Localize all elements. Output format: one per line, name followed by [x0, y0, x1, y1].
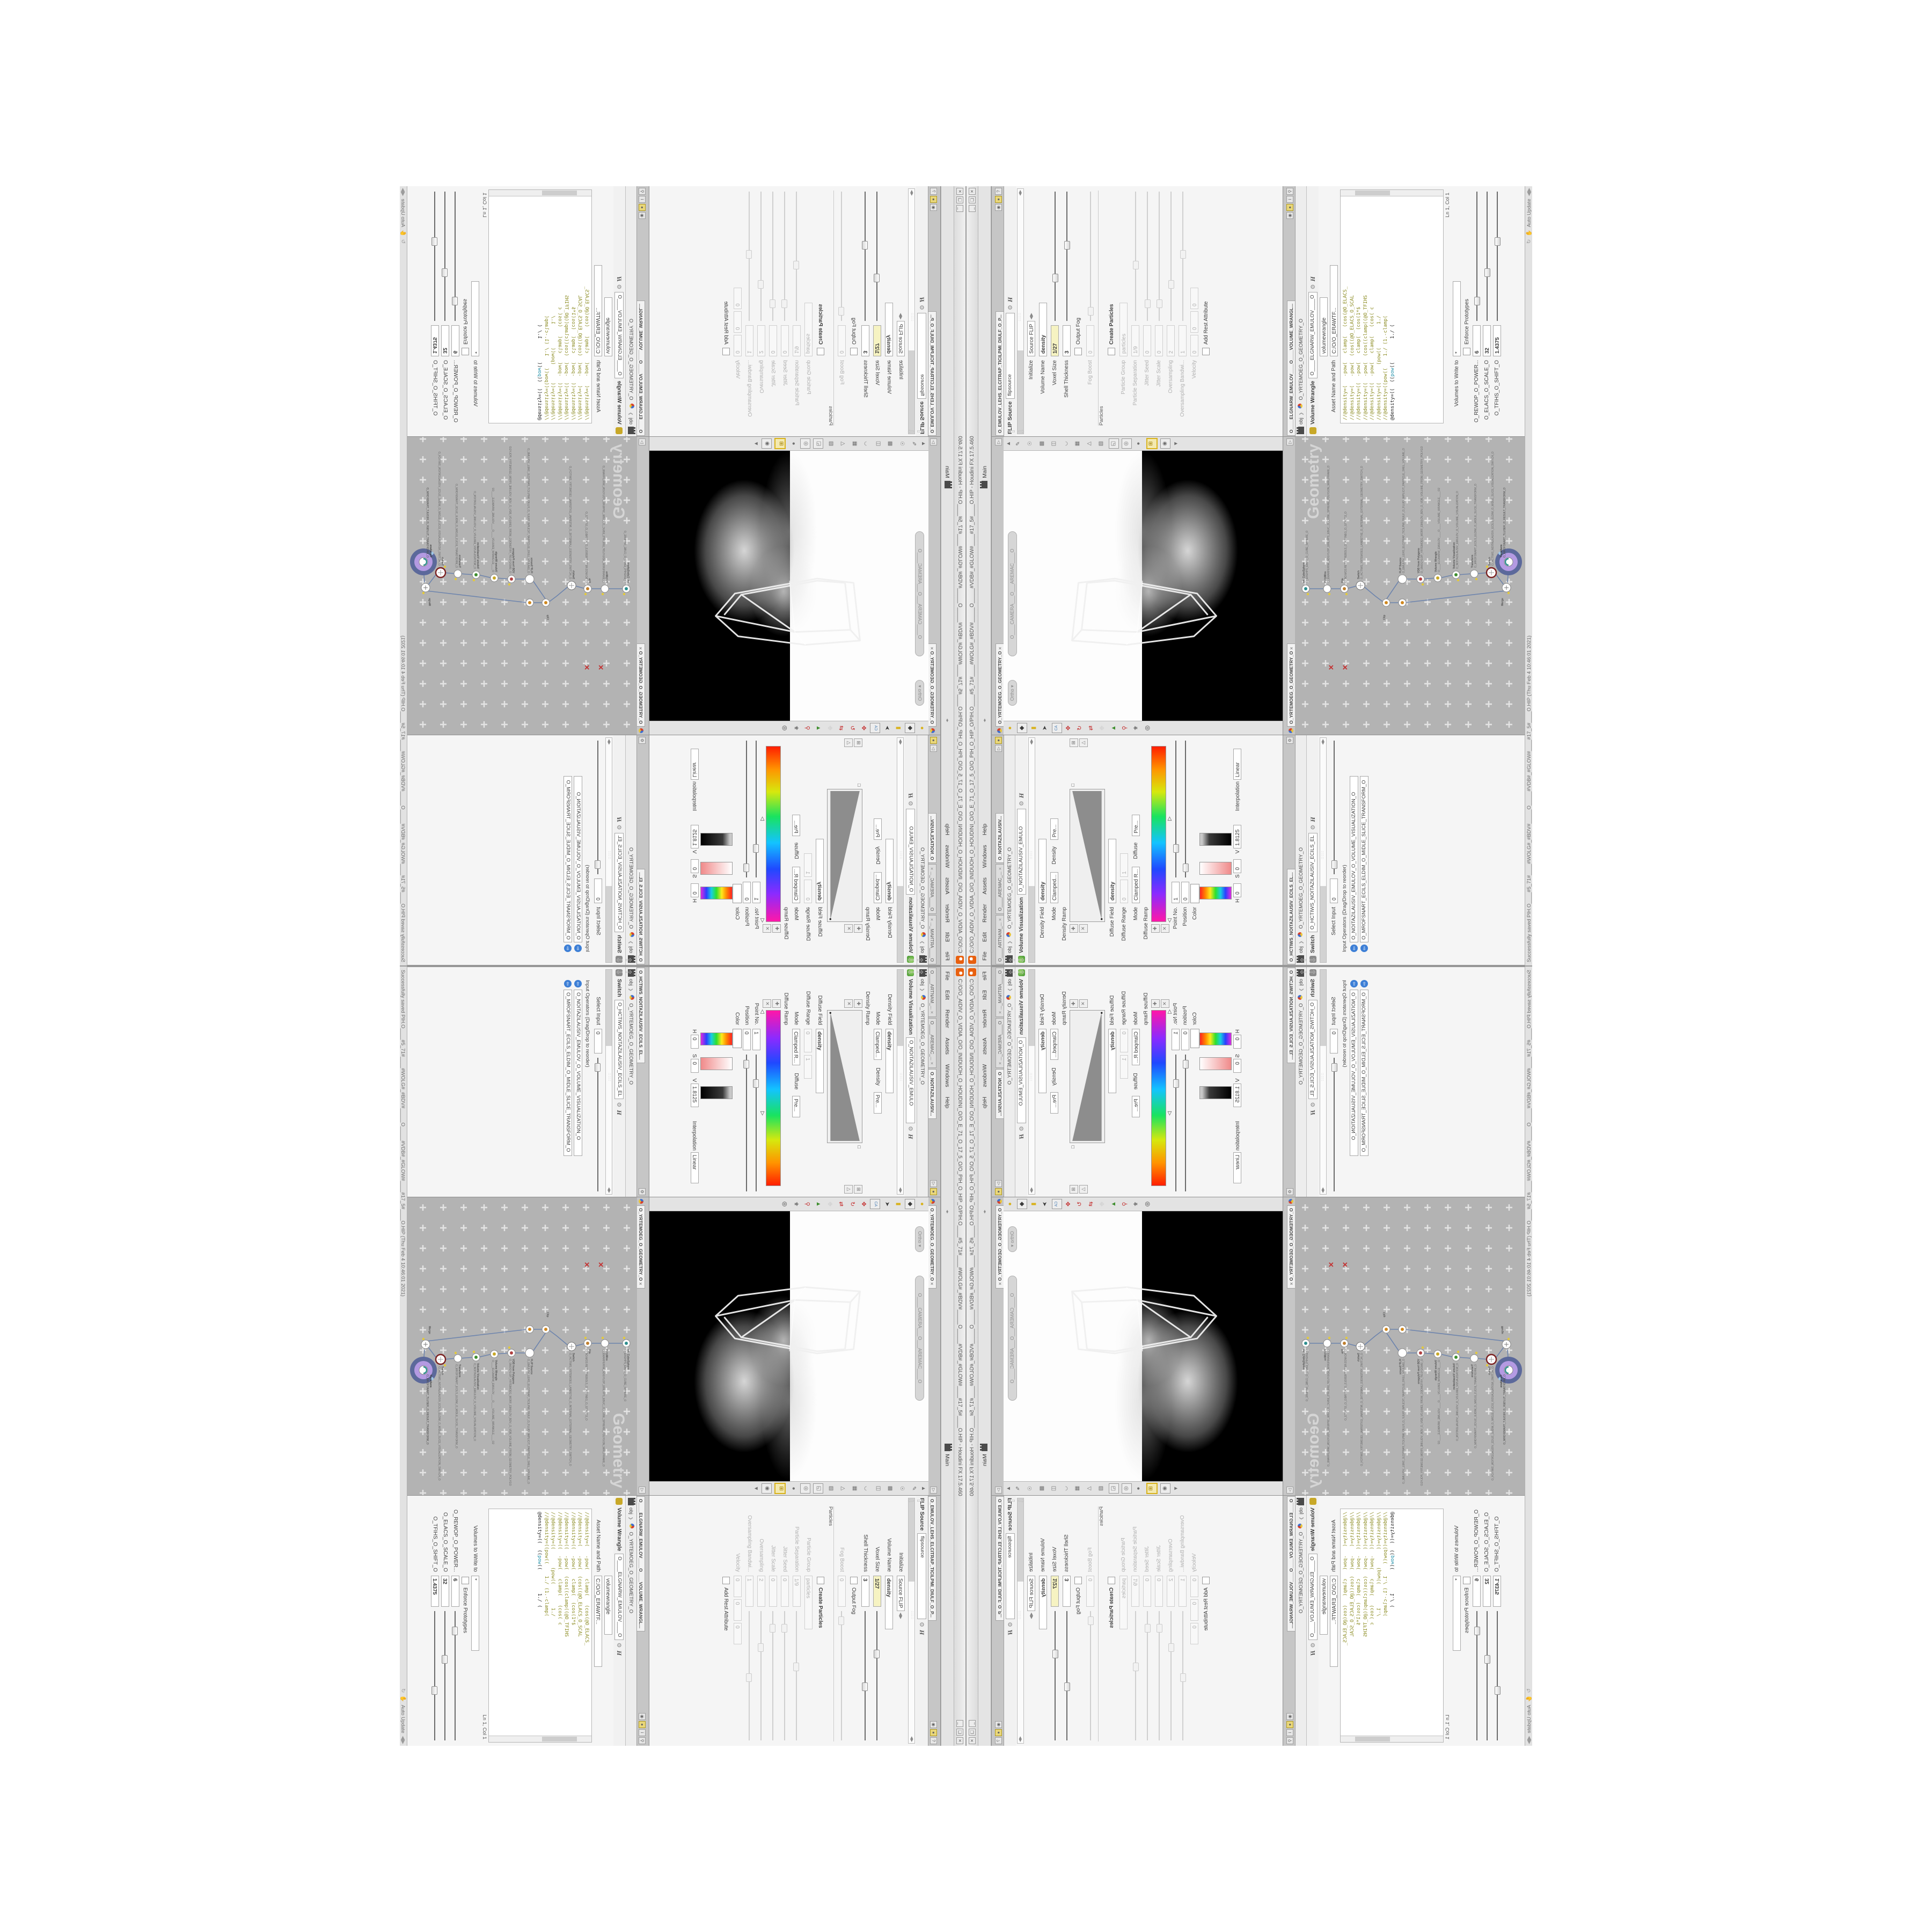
camera-ca-icon[interactable]: CA — [1052, 723, 1062, 733]
switch-gear-icon[interactable]: ⚙ — [639, 737, 646, 744]
gear-icon[interactable]: ⚙ — [908, 1126, 914, 1131]
presets-button[interactable]: Pre... — [1050, 1092, 1058, 1114]
param-scrollbar[interactable]: ::::::◀▶ — [897, 737, 904, 963]
tab-geometry-net[interactable]: O_YRTEMOEG_O_GEOMETRY_O ✕ — [637, 1205, 645, 1289]
tab-mantra[interactable]: O____ARTNAM_... ✕ — [928, 968, 936, 1017]
move-tool-icon[interactable]: ✥ — [859, 1199, 868, 1209]
color-swatch[interactable] — [733, 884, 742, 903]
wrangle-preset-field[interactable]: volumewrangle — [1320, 1576, 1328, 1635]
desktop-selector[interactable]: Main — [945, 1444, 951, 1466]
presets-button[interactable]: Pre... — [874, 818, 882, 840]
presets-button[interactable]: Pre... — [874, 1092, 882, 1114]
diffuse-range-1[interactable]: 1 — [804, 1055, 813, 1079]
shell-thickness-value[interactable]: 3 — [862, 325, 870, 356]
flip-pin-icon[interactable]: ● — [995, 196, 1002, 203]
saturation-value[interactable]: 0 — [1233, 859, 1241, 873]
diffuse-range-1[interactable]: 1 — [804, 853, 813, 877]
tab-wrangle[interactable]: O____ELGNARW_EMULOV____O____VOLUME_WRANG… — [637, 301, 645, 436]
wrangle-pin-icon[interactable]: ● — [639, 1721, 646, 1728]
ramp-marker-icon[interactable]: □ — [1070, 1146, 1075, 1148]
flip-help-icon[interactable]: ? — [930, 1737, 937, 1744]
shell-thickness-value[interactable]: 3 — [1063, 1576, 1071, 1607]
tab-volviz[interactable]: O_NOITAZILAUSIV... — [928, 813, 936, 863]
menu-edit[interactable]: Edit — [945, 985, 951, 1005]
uv-book-icon[interactable]: ▮ — [894, 723, 903, 733]
wrangle-info-icon[interactable]: i — [639, 1729, 646, 1736]
view-grid-icon[interactable]: ▦ — [1073, 439, 1082, 448]
view-quad-icon[interactable]: ⊞ — [774, 438, 786, 449]
select-input-value[interactable]: 0 — [1330, 879, 1338, 903]
close-button[interactable]: ✕ — [969, 188, 976, 195]
film-reel-icon[interactable]: ◎ — [1143, 1199, 1152, 1209]
scale-tool-icon[interactable]: ⇄ — [836, 1199, 845, 1209]
ramp-opt1-icon[interactable]: ⊞ — [1070, 738, 1078, 747]
window-titlebar[interactable]: C:/O/O_AIDIV_O_VIDIA_O/O_INIDUOH_O_HOUDI… — [967, 186, 978, 965]
position-value[interactable]: 0 — [1181, 882, 1189, 903]
jitter-seed-value[interactable]: 0 — [781, 1576, 789, 1607]
flip-name-field[interactable]: flipsource — [918, 313, 927, 399]
add-rest-checkbox[interactable] — [722, 348, 730, 355]
power-value[interactable]: 6 — [1473, 325, 1481, 356]
tab-volviz[interactable]: O_NOITAZILAUSIV... — [996, 1069, 1004, 1119]
breadcrumb-net[interactable]: obj — [628, 946, 634, 953]
input-op-icon[interactable]: ⇦ — [565, 945, 572, 952]
ramp-opt1-icon[interactable]: ⊞ — [854, 738, 862, 747]
viewport-canvas[interactable]: Ortho ▾ O____CAMERA___O___AREMAC____O — [649, 451, 928, 721]
asset-path-value[interactable]: C:/O/O_ERAWTF... — [1330, 1576, 1338, 1667]
velocity-y[interactable]: 0 — [734, 311, 742, 333]
mode-dropdown[interactable]: Clamped... — [874, 872, 882, 903]
minimize-button[interactable]: _ — [969, 205, 976, 212]
asset-path-value[interactable]: C:/O/O_ERAWTF... — [594, 1576, 602, 1667]
color-swatch[interactable] — [733, 1029, 742, 1048]
input-op-icon[interactable]: ⇦ — [575, 980, 582, 987]
code-scrollbar[interactable] — [1341, 190, 1443, 196]
input-op-2[interactable]: O_MROFSNART_ECILS_ELDIM_O_MIDLE_SLICE_TR… — [564, 990, 573, 1156]
view-layout2-icon[interactable]: ◫ — [1050, 439, 1059, 448]
houdini-h-icon[interactable]: H — [1309, 1650, 1317, 1655]
wrangle-magnifier-icon[interactable]: ⚲ — [639, 1737, 646, 1744]
diffuse-field-value[interactable]: density — [1108, 839, 1116, 903]
mode-dropdown[interactable]: Clamped... — [1050, 872, 1058, 903]
gear-icon[interactable]: ⚙ — [616, 1102, 623, 1107]
tab-switch[interactable]: O_HCTIWS_NOITAZILAUSIV_ECILS_EL... — [637, 869, 645, 964]
pose-icon[interactable]: ❉ — [825, 723, 834, 733]
volviz-name-field[interactable]: O_NOITAZILAUSIV_EMULO — [906, 1037, 916, 1123]
param-scrollbar[interactable]: ::::::◀▶ — [1017, 1498, 1024, 1744]
flip-pin-icon[interactable]: ● — [995, 1729, 1002, 1736]
diffuse-range-0[interactable]: 0 — [804, 880, 813, 903]
breadcrumb-node[interactable]: O_YRTEMOEG_O_GEOMETRY_O — [628, 1003, 634, 1085]
diffuse-field-value[interactable]: density — [1108, 1029, 1116, 1093]
ramp2-handle-icon[interactable]: ◁ — [1167, 918, 1173, 923]
param-scrollbar[interactable]: ::::::◀▶ — [1028, 737, 1035, 963]
add-rest-checkbox[interactable] — [1202, 348, 1210, 355]
houdini-h-icon[interactable]: H — [616, 817, 624, 822]
uv-book-icon[interactable]: ▮ — [1029, 723, 1038, 733]
pane-max-icon[interactable]: ▷ — [930, 1180, 937, 1187]
menu-edit[interactable]: Edit — [945, 927, 951, 947]
velocity-x[interactable]: 0 — [1190, 335, 1198, 356]
wrangle-name-field[interactable]: O____ELGNARW_EMULOV____O — [615, 1554, 624, 1640]
input-op-1[interactable]: O_NOITAZILAUSIV_EMULOV_O_VOLUME_VISUALIZ… — [574, 776, 583, 942]
wrangle-magnifier-icon[interactable]: ⚲ — [1286, 188, 1293, 195]
ramp-del-icon[interactable]: ✕ — [844, 924, 853, 933]
point-value[interactable]: 1 — [753, 1029, 761, 1050]
input-operator-row[interactable]: ⇦ O_MROFSNART_ECILS_ELDIM_O_MIDLE_SLICE_… — [1359, 735, 1369, 952]
flip-help-icon[interactable]: ? — [995, 188, 1002, 195]
hand-icon[interactable]: ✋ — [400, 1695, 406, 1702]
shade-flat-icon[interactable]: ◆ — [1017, 723, 1027, 733]
value-value[interactable]: 1.8125 — [1233, 825, 1241, 848]
position-value[interactable]: 0 — [743, 882, 751, 903]
move-tool-icon[interactable]: ✥ — [1064, 723, 1073, 733]
saturation-value[interactable]: 0 — [691, 859, 699, 873]
mode-dropdown[interactable]: Clamped... — [874, 1029, 882, 1060]
ramp-opt1-icon[interactable]: ⊞ — [854, 1185, 862, 1194]
gear-icon[interactable]: ⚙ — [1007, 1622, 1014, 1627]
diffuse-range-0[interactable]: 0 — [1120, 880, 1128, 903]
rotate-tool-icon[interactable]: ↻ — [847, 723, 857, 733]
initialize-dropdown[interactable]: Source FLIP — [1027, 321, 1035, 356]
param-scrollbar[interactable]: ::::::◀▶ — [908, 188, 915, 434]
ramp-opt1-icon[interactable]: ⊞ — [1070, 1185, 1078, 1194]
maximize-button[interactable]: ❏ — [969, 196, 976, 203]
shade-flat-icon[interactable]: ◆ — [905, 723, 915, 733]
scale-tool-icon[interactable]: ⇄ — [1087, 1199, 1096, 1209]
ramp2-del-icon[interactable]: ✕ — [1161, 999, 1169, 1008]
broom-icon[interactable]: ⚜ — [1132, 1199, 1141, 1209]
value-value[interactable]: 1.8125 — [691, 1084, 699, 1107]
pane-splitter-icon[interactable]: ◂▸ — [982, 719, 987, 722]
refresh-icon[interactable]: ↻ — [400, 239, 406, 244]
tab-mantra[interactable]: O____ARTNAM_... ✕ — [928, 915, 936, 964]
oversampling-band-value[interactable]: 1 — [746, 1576, 754, 1607]
volume-name-value[interactable]: density — [1039, 303, 1047, 356]
breadcrumb-node[interactable]: O_YRTEMOEG_O_GEOMETRY_O — [1007, 847, 1013, 929]
menu-help[interactable]: Help — [945, 1092, 951, 1114]
wrangle-target-icon[interactable]: ◉ — [1286, 1713, 1293, 1720]
ramp2-handle2-icon[interactable]: ▷ — [759, 1111, 765, 1116]
auto-update-selector[interactable]: Auto Update — [1526, 199, 1532, 227]
input-op-icon[interactable]: ⇦ — [1360, 945, 1368, 952]
view-quad-icon[interactable]: ⊞ — [1146, 438, 1158, 449]
switch-gear-icon[interactable]: ⚙ — [1286, 737, 1293, 744]
presets-button[interactable]: Pre... — [1050, 818, 1058, 840]
particle-group-value[interactable]: particles — [805, 1576, 813, 1629]
output-fog-checkbox[interactable] — [1074, 348, 1082, 355]
menu-help[interactable]: Help — [982, 819, 988, 840]
input-op-2[interactable]: O_MROFSNART_ECILS_ELDIM_O_MIDLE_SLICE_TR… — [564, 776, 573, 942]
pane-max-icon[interactable]: ▷ — [995, 1180, 1002, 1187]
value-value[interactable]: 1.8125 — [1233, 1084, 1241, 1107]
flip-target-icon[interactable]: ◉ — [930, 204, 937, 211]
view-dot-icon[interactable]: ● — [1135, 1484, 1144, 1493]
ramp-del-icon[interactable]: ✕ — [1079, 999, 1088, 1008]
breadcrumb-net[interactable]: obj — [628, 1507, 634, 1514]
hand-icon[interactable]: ✋ — [400, 230, 406, 236]
hue-bar[interactable] — [700, 1033, 733, 1045]
enforce-prototypes-checkbox[interactable] — [462, 348, 469, 355]
output-fog-checkbox[interactable] — [1074, 1577, 1082, 1584]
breadcrumb-net[interactable]: obj — [1298, 946, 1304, 953]
flip-help-icon[interactable]: ? — [930, 188, 937, 195]
view-persp-icon[interactable]: ◱ — [813, 1483, 823, 1494]
network-canvas[interactable]: Geometry ✕ ✕ an_CubeSphereO_EREHPS_EBUC_… — [407, 1197, 637, 1495]
gear-icon[interactable]: ⚙ — [1018, 801, 1025, 806]
view-snap-icon[interactable]: ☉ — [897, 1484, 906, 1493]
minimize-button[interactable]: _ — [956, 205, 963, 212]
ramp2-add-icon[interactable]: ✚ — [1151, 999, 1160, 1008]
houdini-h-icon[interactable]: H — [1309, 276, 1317, 281]
input-op-icon[interactable]: ⇦ — [1350, 980, 1358, 987]
breadcrumb-net[interactable]: obj — [1298, 979, 1304, 986]
ramp2-del-icon[interactable]: ✕ — [763, 999, 771, 1008]
houdini-h-icon[interactable]: H — [1018, 1134, 1026, 1139]
density-field-value[interactable]: density — [1038, 1029, 1046, 1093]
ramp-add-icon[interactable]: ✚ — [854, 999, 862, 1008]
flip-target-icon[interactable]: ◉ — [995, 1721, 1002, 1728]
hand-icon[interactable]: ✋ — [1526, 1695, 1532, 1702]
hand-icon[interactable]: ✋ — [1526, 230, 1532, 236]
uv-book-icon[interactable]: ▮ — [1029, 1199, 1038, 1209]
tab-camera[interactable]: O____AREMAC_... ✕ — [928, 1018, 936, 1068]
rotate-tool-icon[interactable]: ↻ — [1075, 723, 1085, 733]
tab-volviz[interactable]: O_NOITAZILAUSIV... — [996, 813, 1004, 863]
diffuse-range-1[interactable]: 1 — [1120, 1055, 1128, 1079]
pane-nav-arrows[interactable]: ⇧⇩ — [1008, 956, 1026, 963]
ramp-point-icon[interactable]: ● — [1099, 918, 1104, 920]
pane-splitter-icon[interactable]: ◂▸ — [945, 719, 950, 722]
hue-bar[interactable] — [700, 887, 733, 899]
particle-group-value[interactable]: particles — [1119, 1576, 1128, 1629]
gear-icon[interactable]: ⚙ — [908, 801, 914, 806]
view-curve-icon[interactable]: ◡ — [1062, 1484, 1071, 1493]
fog-boost-value[interactable]: 0 — [1086, 325, 1094, 356]
menu-help[interactable]: Help — [945, 819, 951, 840]
ramp2-add-icon[interactable]: ✚ — [772, 924, 781, 933]
ramp-add-icon[interactable]: ✚ — [854, 924, 862, 933]
film-reel-icon[interactable]: ◎ — [780, 723, 789, 733]
code-scrollbar[interactable] — [489, 1736, 591, 1742]
net-pin-icon[interactable]: ▷ — [639, 1487, 646, 1494]
net-pin-icon[interactable]: ▷ — [639, 438, 646, 445]
initialize-dropdown[interactable]: Source FLIP — [897, 1576, 905, 1611]
vex-code-editor[interactable]: //@density=( -pow( clamp( (cos(@O_ELACS_… — [1340, 189, 1444, 423]
particles-group[interactable]: Particles — [1098, 1506, 1104, 1741]
menu-file[interactable]: File — [982, 967, 988, 985]
jitter-seed-value[interactable]: 0 — [1143, 325, 1151, 356]
maximize-button[interactable]: ❏ — [956, 1729, 963, 1736]
gear-icon[interactable]: ⚙ — [1309, 825, 1316, 830]
houdini-h-icon[interactable]: H — [616, 276, 624, 281]
rotate-tool-icon[interactable]: ↻ — [1075, 1199, 1085, 1209]
film-reel-icon[interactable]: ◎ — [780, 1199, 789, 1209]
film-reel-icon[interactable]: ◎ — [1143, 723, 1152, 733]
update-mode-arrows-icon[interactable]: ◀▶ — [400, 188, 406, 196]
gear-icon[interactable]: ⚙ — [616, 1643, 623, 1648]
pane-nav-arrows[interactable]: ⇧⇩ — [906, 1497, 924, 1504]
mode2-dropdown[interactable]: Clamped R... — [793, 1029, 801, 1065]
tab-camera[interactable]: O____AREMAC_... ✕ — [928, 864, 936, 914]
view-pen-icon[interactable]: ✎ — [1014, 439, 1023, 448]
saturation-bar[interactable] — [1199, 1057, 1232, 1070]
tab-flip[interactable]: O_EMULOV_LEHS_ELCITRAP_TICILPMI_DIULF_O_… — [928, 311, 936, 436]
shade-flat-icon[interactable]: ◆ — [905, 1199, 915, 1209]
select-arrow-icon[interactable]: ➤ — [1041, 723, 1050, 733]
enforce-prototypes-checkbox[interactable] — [462, 1577, 469, 1584]
ramp-add-icon[interactable]: ✚ — [1070, 924, 1078, 933]
hue-value[interactable]: 0 — [1233, 883, 1241, 897]
shell-thickness-value[interactable]: 3 — [1063, 325, 1071, 356]
input-operator-row[interactable]: ⇦ O_NOITAZILAUSIV_EMULOV_O_VOLUME_VISUAL… — [1349, 980, 1359, 1197]
volume-name-value[interactable]: density — [885, 303, 894, 356]
param-scrollbar[interactable]: ::::::◀▶ — [1320, 737, 1327, 963]
view-quad-icon[interactable]: ⊞ — [774, 1483, 786, 1494]
tab-flip[interactable]: O_EMULOV_LEHS_ELCITRAP_TICILPMI_DIULF_O_… — [928, 1496, 936, 1621]
jitter-scale-value[interactable]: 0 — [770, 325, 778, 356]
param-scrollbar[interactable]: ::::::◀▶ — [897, 969, 904, 1195]
ramp-opt2-icon[interactable]: △ — [1079, 738, 1088, 747]
oversampling-value[interactable]: 2 — [1167, 325, 1175, 356]
pane-max-icon[interactable]: ▷ — [995, 745, 1002, 752]
breadcrumb-net[interactable]: obj — [628, 979, 634, 986]
interpolation-dropdown[interactable]: Linear — [1233, 749, 1241, 780]
value-bar[interactable] — [1199, 1086, 1232, 1099]
pane-nav-arrows[interactable]: ⇧⇩ — [1008, 428, 1026, 435]
breadcrumb-node[interactable]: O_YRTEMOEG_O_GEOMETRY_O — [628, 319, 634, 400]
oversampling-value[interactable]: 2 — [758, 1576, 766, 1607]
view-pen-icon[interactable]: ✎ — [1014, 1484, 1023, 1493]
param-scrollbar[interactable]: ::::::◀▶ — [605, 737, 612, 963]
menu-help[interactable]: Help — [982, 1092, 988, 1114]
refresh-icon[interactable]: ↻ — [1526, 239, 1532, 244]
maximize-button[interactable]: ❏ — [956, 196, 963, 203]
ramp2-add-icon[interactable]: ✚ — [772, 999, 781, 1008]
diffuse-ramp-widget[interactable]: ◁ ▷ — [766, 746, 781, 922]
houdini-h-icon[interactable]: H — [918, 297, 926, 302]
gear-icon[interactable]: ⚙ — [1018, 1126, 1025, 1131]
menu-file[interactable]: File — [945, 967, 951, 985]
pane-nav-arrows[interactable]: ⇧⇩ — [906, 428, 924, 435]
window-titlebar[interactable]: C:/O/O_AIDIV_O_VIDIA_O/O_INIDUOH_O_HOUDI… — [954, 967, 965, 1746]
houdini-h-icon[interactable]: H — [907, 793, 915, 798]
volviz-name-field[interactable]: O_NOITAZILAUSIV_EMULO — [906, 809, 916, 895]
oversampling-value[interactable]: 2 — [758, 325, 766, 356]
density-field-value[interactable]: density — [1038, 839, 1046, 903]
input-op-1[interactable]: O_NOITAZILAUSIV_EMULOV_O_VOLUME_VISUALIZ… — [574, 990, 583, 1156]
houdini-h-icon[interactable]: H — [616, 1650, 624, 1655]
shade-flat-icon[interactable]: ◆ — [1017, 1199, 1027, 1209]
switch-name-field[interactable]: O_HCTIWS_NOITAZILAUSIV_ECILS_EL — [615, 833, 624, 933]
pane-pin-icon[interactable]: ● — [995, 737, 1002, 744]
particle-separation-value[interactable]: 1/9 — [1131, 1576, 1139, 1607]
scroll-down-icon[interactable]: ▼ — [753, 1486, 759, 1491]
presets2-button[interactable]: Pre... — [793, 1096, 801, 1117]
output-fog-checkbox[interactable] — [850, 1577, 858, 1584]
velocity-y[interactable]: 0 — [734, 1599, 742, 1621]
view-layout2-icon[interactable]: ◫ — [873, 1484, 882, 1493]
enforce-prototypes-checkbox[interactable] — [1463, 348, 1470, 355]
gear-icon[interactable]: ⚙ — [1309, 284, 1316, 290]
update-mode-arrows-icon[interactable]: ◀▶ — [1526, 188, 1532, 196]
ramp-point-icon[interactable]: ● — [828, 1012, 833, 1014]
view-persp-icon[interactable]: ◱ — [1109, 1483, 1119, 1494]
gear-icon[interactable]: ⚙ — [919, 305, 926, 310]
value-bar[interactable] — [700, 833, 733, 846]
shell-thickness-value[interactable]: 3 — [862, 1576, 870, 1607]
desktop-selector[interactable]: Main — [982, 466, 988, 488]
viewport-expand-icon[interactable]: ▷ — [930, 1487, 937, 1494]
snap-magnet-icon[interactable]: ⚲ — [802, 1199, 811, 1209]
param-scrollbar[interactable]: ::::::◀▶ — [605, 969, 612, 1195]
color-swatch[interactable] — [1190, 884, 1199, 903]
gear-icon[interactable]: ⚙ — [1309, 1102, 1316, 1107]
view-curve-icon[interactable]: ◡ — [861, 1484, 870, 1493]
select-arrow-icon[interactable]: ➤ — [882, 1199, 891, 1209]
view-abc-icon[interactable]: ▧ — [826, 1484, 835, 1493]
pose-icon[interactable]: ❉ — [1098, 1199, 1107, 1209]
pane-pin-icon[interactable]: ● — [930, 737, 937, 744]
view-eye-icon[interactable]: ◉ — [762, 438, 772, 449]
diffuse-ramp-widget[interactable]: ◁ ▷ — [766, 1010, 781, 1186]
ramp-opt2-icon[interactable]: △ — [844, 1185, 853, 1194]
voxel-size-value[interactable]: 1/27 — [1051, 1576, 1059, 1607]
create-particles-checkbox[interactable] — [817, 348, 824, 355]
presets2-button[interactable]: Pre... — [1132, 1096, 1140, 1117]
saturation-bar[interactable] — [700, 862, 733, 875]
param-scrollbar[interactable]: ::::::◀▶ — [1017, 188, 1024, 434]
wrangle-preset-field[interactable]: volumewrangle — [604, 1576, 612, 1635]
saturation-bar[interactable] — [1199, 862, 1232, 875]
wrangle-magnifier-icon[interactable]: ⚲ — [639, 188, 646, 195]
scroll-down-icon[interactable]: ▼ — [1173, 1486, 1179, 1491]
interpolation-dropdown[interactable]: Linear — [691, 1152, 699, 1183]
velocity-x[interactable]: 0 — [1190, 1576, 1198, 1597]
window-titlebar[interactable]: C:/O/O_AIDIV_O_VIDIA_O/O_INIDUOH_O_HOUDI… — [967, 967, 978, 1746]
add-rest-checkbox[interactable] — [1202, 1577, 1210, 1584]
shade-sphere-icon[interactable]: ● — [917, 1199, 926, 1209]
menu-windows[interactable]: Windows — [982, 1059, 988, 1092]
scale-tool-icon[interactable]: ⇄ — [1087, 723, 1096, 733]
tab-flip[interactable]: O_EMULOV_LEHS_ELCITRAP_TICILPMI_DIULF_O_… — [996, 311, 1004, 436]
input-op-2[interactable]: O_MROFSNART_ECILS_ELDIM_O_MIDLE_SLICE_TR… — [1360, 990, 1368, 1156]
pane-nav-arrows[interactable]: ⇧⇩ — [1299, 956, 1318, 963]
tab-mantra[interactable]: O____ARTNAM_... ✕ — [996, 915, 1004, 964]
menu-file[interactable]: File — [945, 947, 951, 965]
breadcrumb-node[interactable]: O_YRTEMOEG_O_GEOMETRY_O — [1298, 1003, 1304, 1085]
wrangle-target-icon[interactable]: ◉ — [639, 212, 646, 219]
houdini-h-icon[interactable]: H — [1006, 1630, 1014, 1635]
switch-gear-icon[interactable]: ⚙ — [639, 1188, 646, 1195]
input-op-1[interactable]: O_NOITAZILAUSIV_EMULOV_O_VOLUME_VISUALIZ… — [1350, 990, 1358, 1156]
axis-cone-icon[interactable]: ▲ — [1109, 1199, 1118, 1209]
menu-edit[interactable]: Edit — [982, 927, 988, 947]
breadcrumb-node[interactable]: O_YRTEMOEG_O_GEOMETRY_O — [920, 1003, 926, 1085]
wrangle-pin-icon[interactable]: ● — [1286, 1721, 1293, 1728]
menu-windows[interactable]: Windows — [982, 840, 988, 873]
shift-value[interactable]: 1.4375 — [431, 1576, 439, 1607]
point-value[interactable]: 1 — [1172, 1029, 1180, 1050]
update-mode-arrows-icon[interactable]: ◀▶ — [400, 1736, 406, 1744]
scale-value[interactable]: 32 — [441, 325, 449, 356]
gear-icon[interactable]: ⚙ — [1309, 1643, 1316, 1648]
menu-render[interactable]: Render — [945, 899, 951, 927]
interpolation-dropdown[interactable]: Linear — [691, 749, 699, 780]
particle-separation-value[interactable]: 1/9 — [793, 1576, 801, 1607]
viewport-expand-icon[interactable]: ▷ — [995, 438, 1002, 445]
scroll-up-icon[interactable]: ▲ — [920, 1486, 926, 1491]
